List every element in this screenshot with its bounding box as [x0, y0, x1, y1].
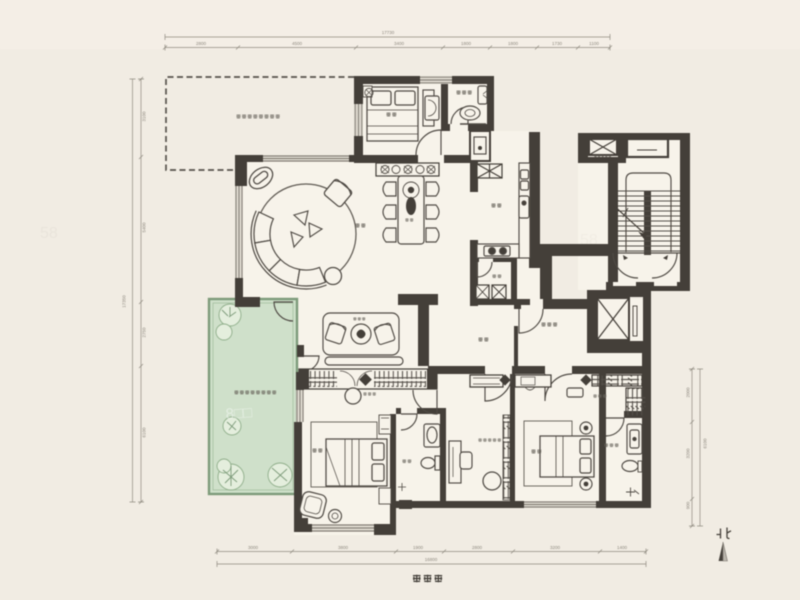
svg-text:5400: 5400 [142, 222, 147, 233]
svg-text:6100: 6100 [703, 438, 708, 449]
svg-text:1900: 1900 [413, 545, 424, 550]
svg-text:16800: 16800 [425, 557, 438, 562]
svg-text:6100: 6100 [142, 427, 147, 438]
svg-text:1800: 1800 [508, 41, 519, 46]
svg-text:58: 58 [40, 225, 58, 242]
svg-text:4500: 4500 [292, 41, 303, 46]
svg-text:2750: 2750 [142, 327, 147, 338]
svg-text:900: 900 [686, 501, 691, 509]
svg-text:2800: 2800 [472, 545, 483, 550]
svg-text:3000: 3000 [248, 545, 259, 550]
svg-text:3400: 3400 [394, 41, 405, 46]
svg-text:1800: 1800 [461, 41, 472, 46]
svg-text:3100: 3100 [142, 111, 147, 122]
svg-text:2000: 2000 [686, 387, 691, 398]
svg-text:2800: 2800 [196, 41, 207, 46]
svg-text:1100: 1100 [589, 41, 599, 46]
svg-text:17350: 17350 [122, 295, 127, 308]
svg-text:3200: 3200 [550, 545, 561, 550]
svg-text:8□□: 8□□ [225, 404, 253, 423]
svg-text:1730: 1730 [552, 41, 563, 46]
svg-text:1400: 1400 [617, 545, 628, 550]
svg-text:3800: 3800 [338, 545, 349, 550]
svg-text:3200: 3200 [686, 448, 691, 459]
svg-text:17730: 17730 [382, 30, 395, 35]
